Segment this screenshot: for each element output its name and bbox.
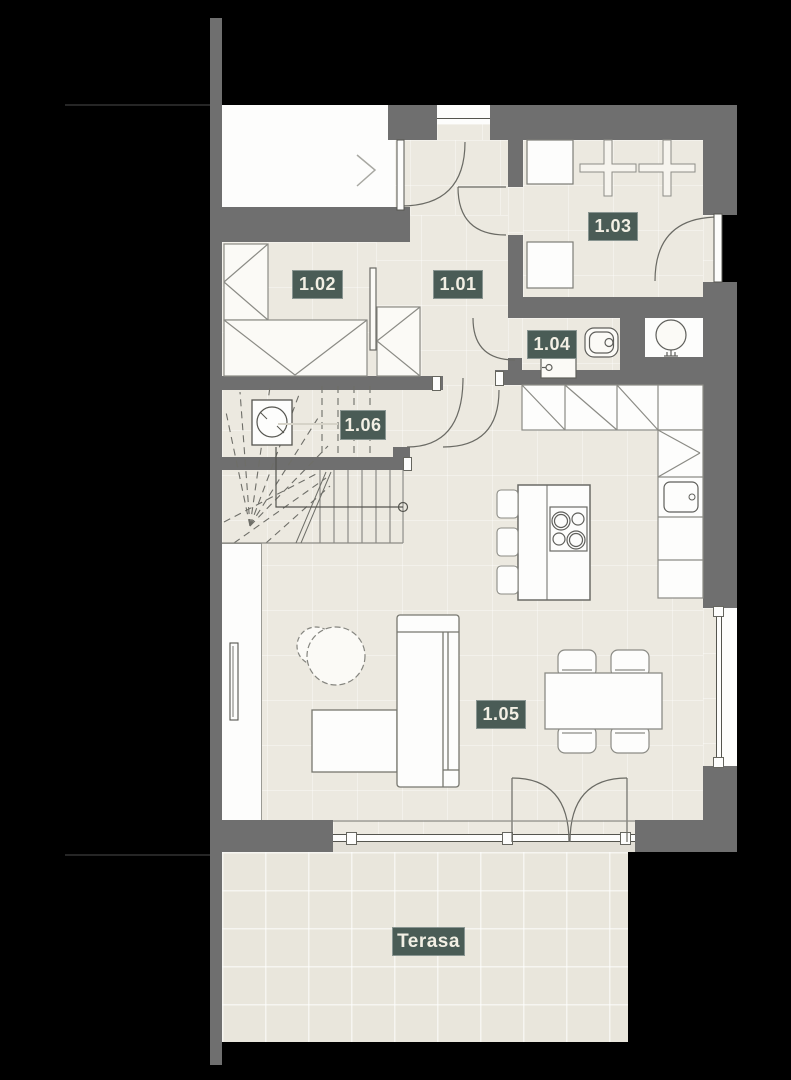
coffee-table-icon: [307, 627, 365, 685]
dining-set: [545, 650, 662, 753]
radiator-icon: [230, 643, 238, 720]
bar-stools: [497, 490, 518, 594]
kitchen: [497, 385, 703, 600]
living-room-furniture: [230, 615, 459, 787]
dining-table-icon: [545, 673, 662, 729]
room-label-1-03: 1.03: [588, 212, 638, 241]
room-label-1-05: 1.05: [476, 700, 526, 729]
room-label-1-01: 1.01: [433, 270, 483, 299]
kitchen-sink-icon: [664, 482, 698, 512]
site-boundary-lines: [65, 105, 210, 855]
room-label-1-02: 1.02: [292, 270, 343, 299]
plan-linework: [0, 0, 791, 1080]
boiler-icon: [656, 320, 686, 356]
terrace-label: Terasa: [392, 927, 465, 956]
dryer-cross-icon: [580, 140, 636, 196]
dryer-cross-icon: [639, 140, 695, 196]
room-label-1-06: 1.06: [340, 410, 386, 440]
entrance-arrow-icon: [357, 155, 375, 186]
floor-plan: 1.01 1.02 1.03 1.04 1.05 1.06 Terasa: [0, 0, 791, 1080]
room-label-1-04: 1.04: [527, 330, 577, 359]
wardrobe-icons: [224, 244, 420, 376]
